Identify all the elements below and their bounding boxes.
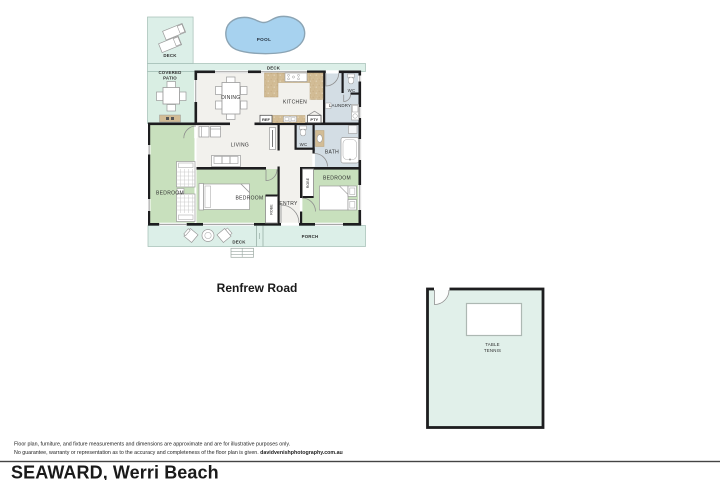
svg-text:LIVING: LIVING xyxy=(231,143,249,149)
svg-text:Floor plan, furniture, and fix: Floor plan, furniture, and fixture measu… xyxy=(14,442,290,448)
svg-text:TENNIS: TENNIS xyxy=(484,348,501,353)
svg-text:ROBE: ROBE xyxy=(306,177,310,188)
svg-text:PTY: PTY xyxy=(310,117,318,122)
svg-text:BEDROOM: BEDROOM xyxy=(156,191,184,197)
svg-text:REF: REF xyxy=(262,117,271,122)
svg-text:ENTRY: ENTRY xyxy=(279,201,298,207)
svg-text:SEAWARD, Werri Beach: SEAWARD, Werri Beach xyxy=(11,462,219,480)
svg-text:POOL: POOL xyxy=(257,37,272,42)
svg-text:BEDROOM: BEDROOM xyxy=(236,196,264,202)
svg-text:DECK: DECK xyxy=(267,66,281,71)
svg-text:KITCHEN: KITCHEN xyxy=(283,100,307,106)
svg-text:DECK: DECK xyxy=(232,240,246,245)
svg-text:LAUNDRY: LAUNDRY xyxy=(329,103,351,108)
svg-text:WC: WC xyxy=(348,88,356,93)
svg-text:No guarantee, warranty or repr: No guarantee, warranty or representation… xyxy=(14,450,343,456)
svg-text:WC: WC xyxy=(300,142,308,147)
svg-text:DECK: DECK xyxy=(163,53,177,58)
svg-text:DINING: DINING xyxy=(221,95,240,101)
svg-text:PATIO: PATIO xyxy=(163,75,177,80)
svg-text:PORCH: PORCH xyxy=(302,234,319,239)
svg-text:BATH: BATH xyxy=(325,150,339,156)
svg-text:ROBE: ROBE xyxy=(270,204,274,215)
svg-text:COVERED: COVERED xyxy=(158,70,181,75)
svg-text:TABLE: TABLE xyxy=(485,342,500,347)
svg-text:Renfrew Road: Renfrew Road xyxy=(217,281,298,295)
svg-text:BEDROOM: BEDROOM xyxy=(323,176,351,182)
